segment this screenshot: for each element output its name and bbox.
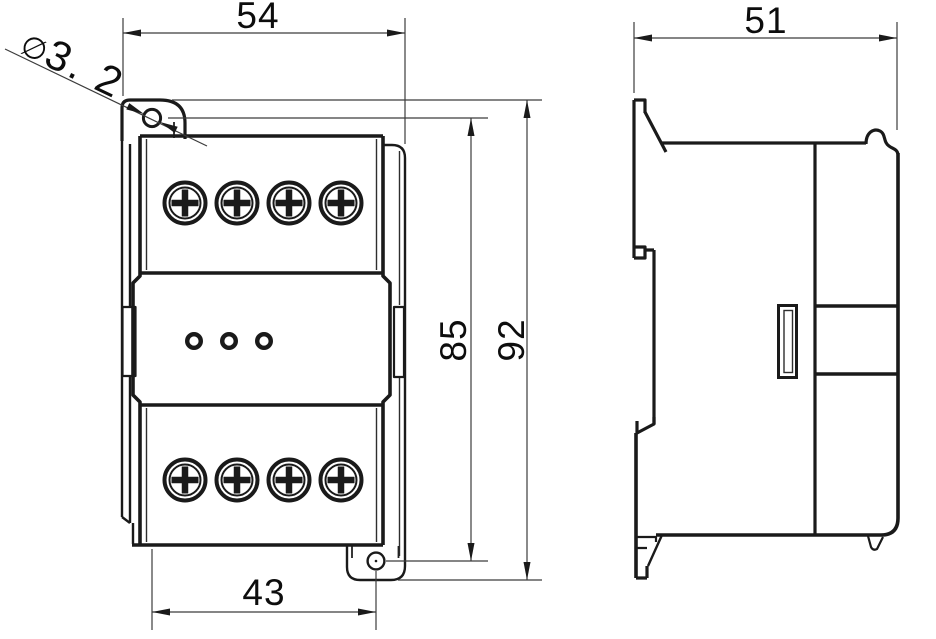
side-top-chamfer [645, 112, 666, 152]
backplate-slot-right [394, 307, 404, 377]
terminal-screw [269, 183, 310, 224]
side-top-tab [634, 100, 645, 113]
release-latch-hook [866, 130, 898, 154]
terminal-screw [165, 460, 206, 501]
dimension-front-width-54: 54 [123, 0, 405, 144]
side-view [634, 100, 898, 578]
dim-54-arrow-left [123, 30, 141, 37]
dim-43-arrow-left [152, 609, 170, 616]
dimension-side-depth-51: 51 [634, 0, 897, 130]
terminal-screw [321, 183, 362, 224]
din-claw-bottom [637, 417, 654, 433]
dim-92-label: 92 [491, 318, 532, 361]
technical-drawing: 54 ∅ 3. 2 92 85 43 [0, 0, 936, 639]
dimension-hole-span-43: 43 [152, 549, 376, 630]
dia-arrow-lower [160, 122, 178, 133]
dim-51-label: 51 [744, 0, 787, 41]
terminal-screw [269, 460, 310, 501]
dim-54-label: 54 [236, 0, 279, 36]
dim-51-arrow-left [634, 35, 652, 42]
side-din-rail-profile [634, 100, 662, 578]
dia-value: 3. 2 [38, 30, 132, 108]
dim-85-arrow-bottom [468, 543, 475, 561]
side-foot-right [868, 536, 883, 550]
dim-85-label: 85 [433, 318, 474, 361]
front-view [122, 100, 405, 580]
din-leg-foot-bar [636, 537, 656, 548]
din-clip-slide [779, 306, 797, 378]
dia-arrow-upper [126, 103, 144, 114]
dim-43-arrow-right [358, 609, 376, 616]
drawing-page: 54 ∅ 3. 2 92 85 43 [0, 0, 936, 639]
dimension-hole-diameter: ∅ 3. 2 [5, 29, 207, 146]
dim-51-arrow-right [879, 35, 897, 42]
indicator-hole [222, 334, 236, 348]
terminal-screw [217, 183, 258, 224]
mounting-hole-top [143, 109, 160, 126]
body-right-edge [383, 136, 390, 545]
left-strip-foot [122, 517, 133, 544]
front-face-section-lines [815, 306, 897, 374]
dim-54-arrow-right [387, 30, 405, 37]
terminal-screws-bottom [165, 460, 362, 501]
indicator-hole [187, 334, 201, 348]
dim-85-arrow-top [468, 118, 475, 136]
indicator-hole [257, 334, 271, 348]
dim-43-label: 43 [242, 572, 285, 613]
din-claw-top-notch [634, 247, 645, 258]
terminal-screw [165, 183, 206, 224]
terminal-screw [217, 460, 258, 501]
side-housing [645, 112, 898, 550]
side-left-edge-mid [645, 250, 654, 424]
indicator-holes [187, 334, 271, 348]
dim-92-arrow-bottom [524, 562, 531, 580]
dim-92-arrow-top [524, 100, 531, 118]
terminal-screws-top [165, 183, 362, 224]
mounting-hole-bottom-center-mark [375, 560, 378, 563]
terminal-screw [321, 460, 362, 501]
